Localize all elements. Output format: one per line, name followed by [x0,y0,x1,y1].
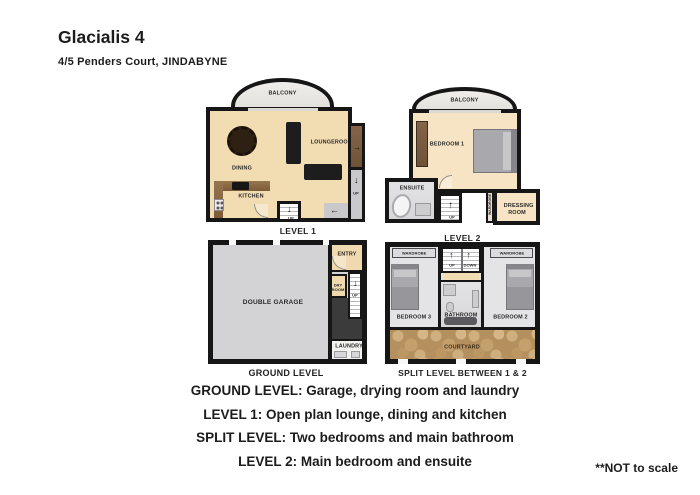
floorplan-page: Glacialis 4 4/5 Penders Court, JINDABYNE… [0,0,700,495]
level1-dining-label: DINING [223,166,260,171]
split-courtyard: COURTYARD [390,327,535,359]
cooktop [232,182,249,190]
garage-door-gap [229,240,236,245]
dressing-room-label: DRESSING ROOM [504,203,531,217]
shower [443,284,456,296]
door-arc [439,175,452,188]
courtyard-gate-gap [456,359,466,364]
level2-dressing-room: DRESSING ROOM [493,189,540,225]
courtyard-gate-gap [516,359,526,364]
stair-landing: ← [324,203,348,218]
ground-laundry: LAUNDRY [332,339,362,359]
dryer [351,351,360,358]
floorplan-level1: BALCONY DINING LOUNGEROOM KITCHEN ← → [200,78,396,238]
split-stairs: ↑ ↑ UP DOWN [441,247,481,273]
bedroom3-label: BEDROOM 3 [395,315,432,320]
split-wardrobe-right-label: WARDROBE [500,251,524,255]
level2-up-label: UP [444,215,459,219]
level2-bedroom1-label: BEDROOM 1 [425,142,469,147]
level1-stairs: ↓ UP [277,201,301,222]
level2-balcony-label: BALCONY [427,98,503,103]
caption-ground: GROUND LEVEL: Garage, drying room and la… [10,383,700,398]
level1-up-label: UP [283,216,298,220]
not-to-scale-note: **NOT to scale [595,461,678,475]
split-wardrobe-left-label: WARDROBE [402,251,426,255]
level1-deck: → [348,123,365,171]
level2-stairs: ↑ UP [438,193,462,223]
dry-room-label: DRY ROOM [332,284,345,294]
courtyard-label: COURTYARD [428,345,497,350]
sofa [286,122,301,164]
washer [334,351,347,358]
balcony-door-opening [429,110,501,113]
door-arc [254,204,268,218]
down-arrow-icon: ↓ [354,176,359,185]
up-arrow-icon: ↑ [449,251,454,260]
door-arc [332,256,346,270]
split-landing [443,273,479,280]
level1-plan-label: LEVEL 1 [200,226,396,236]
level1-up-label: UP [348,191,363,195]
up-arrow-icon: ↑ [467,251,472,260]
caption-split: SPLIT LEVEL: Two bedrooms and main bathr… [10,430,700,445]
ensuite-label: ENSUITE [396,186,429,191]
up-arrow-icon: ↑ [448,201,453,211]
ground-plan-label: GROUND LEVEL [205,368,367,378]
bedroom2-label: BEDROOM 2 [491,315,529,320]
split-up-label: UP [445,263,459,267]
wall [481,247,484,327]
understair-zone [346,319,362,339]
split-plan-label: SPLIT LEVEL BETWEEN 1 & 2 [383,368,542,378]
ground-up-label: UP [348,293,362,297]
right-arrow-icon: → [353,144,361,152]
kitchen-sink [214,199,224,211]
garage-door-gap [273,240,280,245]
ground-entry: ENTRY [332,245,362,272]
ground-shell: DOUBLE GARAGE ENTRY DRY ROOM ↓ UP LAUND [208,240,367,364]
level1-balcony-label: BALCONY [245,91,319,96]
page-subtitle: 4/5 Penders Court, JINDABYNE [58,56,227,68]
bathtub [444,317,477,325]
split-bathroom: BATHROOM [441,280,481,327]
split-shell: COURTYARD WARDROBE BEDROOM 3 ↑ ↑ UP [385,242,540,364]
double-garage-label: DOUBLE GARAGE [221,299,325,306]
floorplan-ground: DOUBLE GARAGE ENTRY DRY ROOM ↓ UP LAUND [205,238,367,382]
ground-stairs: ↓ UP [348,272,362,319]
courtyard-gate-gap [398,359,408,364]
ground-dry-room: DRY ROOM [332,274,347,298]
down-arrow-icon: ↓ [287,205,292,214]
vanity [472,290,479,308]
shower [415,203,431,216]
wardrobe: WARDROBE [490,248,533,258]
floorplan-split: COURTYARD WARDROBE BEDROOM 3 ↑ ↑ UP [383,240,542,382]
sofa [304,164,342,180]
bathtub [389,192,413,220]
bed [473,129,517,173]
balcony-door-opening [248,108,318,111]
floorplan-level2: BALCONY BEDROOM 1 ENSUITE ↑ UP WARDROBE … [383,85,542,245]
page-title: Glacialis 4 [58,27,145,48]
level2-wardrobe-label: WARDROBE [488,200,492,215]
bed [506,264,534,310]
level1-loungeroom-label: LOUNGEROOM [311,140,344,145]
dining-table [227,126,257,156]
bed [391,264,419,310]
level2-ensuite: ENSUITE [385,178,438,223]
laundry-label: LAUNDRY [335,344,358,349]
split-down-label: DOWN [463,263,477,267]
level1-stair-landing: ↓ UP [348,167,365,222]
caption-level1: LEVEL 1: Open plan lounge, dining and ki… [10,407,700,422]
level1-kitchen-label: KITCHEN [232,194,269,199]
wardrobe: WARDROBE [392,248,436,258]
toilet [446,302,454,312]
down-arrow-icon: ↓ [353,279,358,288]
left-arrow-icon: ← [330,206,339,215]
